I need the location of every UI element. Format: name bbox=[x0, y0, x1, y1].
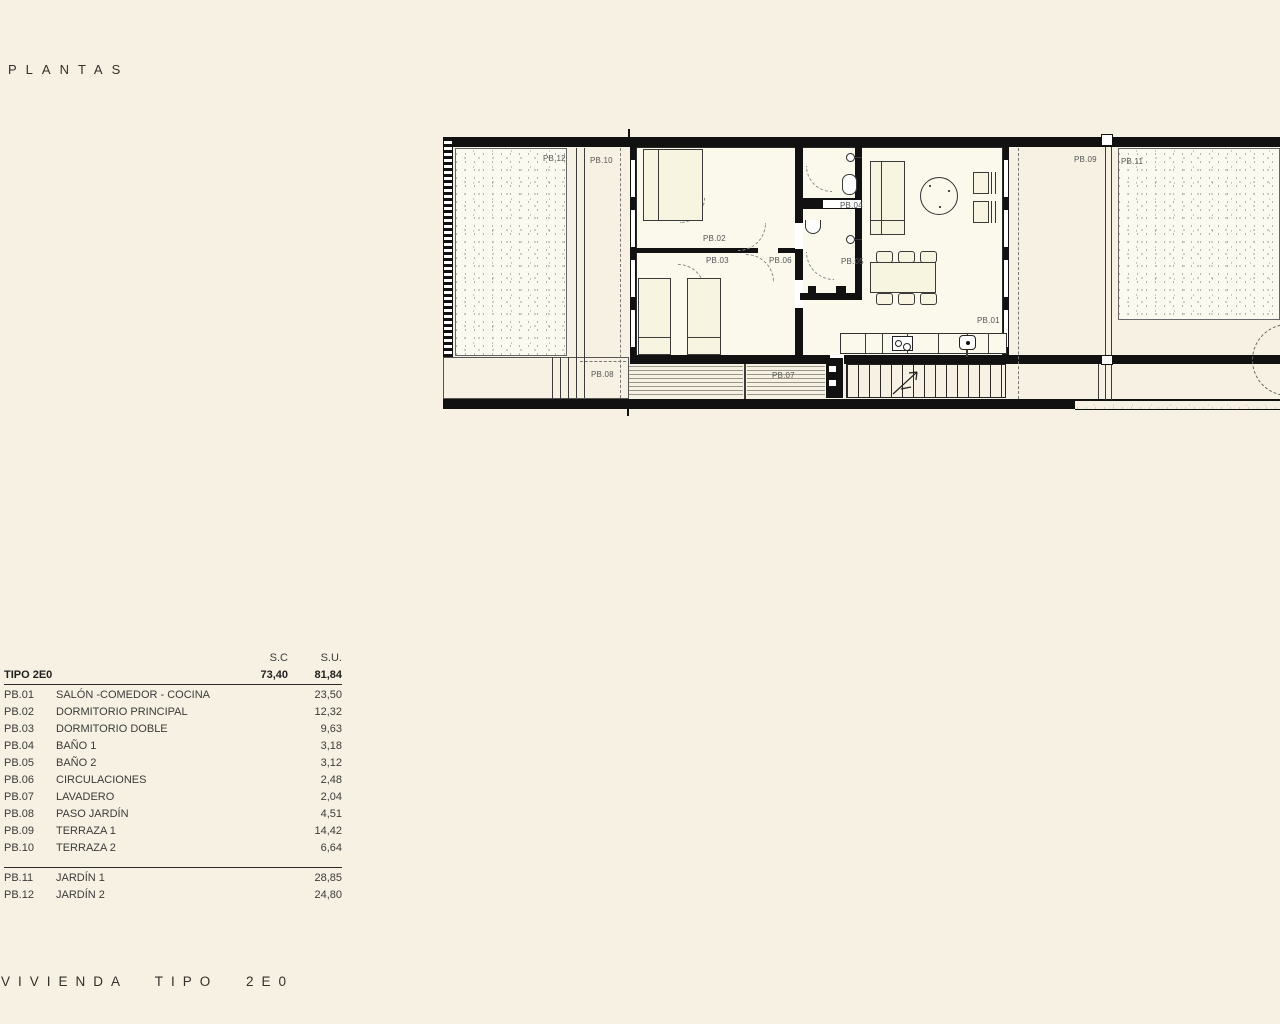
laundry-wall bbox=[826, 358, 843, 398]
room-area-value: 12,32 bbox=[288, 706, 342, 718]
table-dot bbox=[929, 185, 931, 187]
burner bbox=[895, 340, 902, 347]
room-area-value: 2,04 bbox=[288, 791, 342, 803]
table-row: PB.04 BAÑO 1 3,18 bbox=[4, 737, 342, 754]
armchair-armrest bbox=[991, 172, 996, 194]
bathroom-wall-right bbox=[855, 147, 862, 300]
table-summary-row: TIPO 2E0 73,40 81,84 bbox=[4, 666, 342, 683]
shower-arm bbox=[854, 157, 862, 158]
wall-pier bbox=[808, 286, 816, 293]
room-code: PB.01 bbox=[4, 689, 56, 701]
sink-icon bbox=[959, 335, 976, 350]
table-gap bbox=[4, 856, 342, 866]
sheet-title: VIVIENDA TIPO 2E0 bbox=[1, 974, 294, 989]
room-area-value: 28,85 bbox=[288, 872, 342, 884]
table-row: PB.11 JARDÍN 1 28,85 bbox=[4, 869, 342, 886]
toilet bbox=[842, 174, 857, 195]
sofa-seat-line bbox=[871, 220, 904, 221]
table-rule bbox=[4, 867, 342, 868]
room-name: LAVADERO bbox=[56, 791, 230, 803]
room-name: SALÓN -COMEDOR - COCINA bbox=[56, 689, 230, 701]
room-code: PB.05 bbox=[4, 757, 56, 769]
gravel-texture bbox=[1077, 403, 1278, 409]
room-code: PB.03 bbox=[4, 723, 56, 735]
stairs-direction-arrow bbox=[885, 365, 955, 397]
bathroom-wall-bottom bbox=[800, 293, 862, 300]
room-name: TERRAZA 1 bbox=[56, 825, 230, 837]
boundary-band-right bbox=[1075, 399, 1280, 410]
stove-icon bbox=[892, 336, 913, 351]
room-area-value: 23,50 bbox=[288, 689, 342, 701]
page-title: PLANTAS bbox=[8, 62, 129, 77]
sofa bbox=[870, 161, 905, 235]
room-name: DORMITORIO PRINCIPAL bbox=[56, 706, 230, 718]
table-header-row: S.C S.U. bbox=[4, 649, 342, 666]
round-table bbox=[920, 177, 958, 215]
room-code: PB.08 bbox=[4, 808, 56, 820]
roof-overhang-dashed bbox=[1018, 148, 1019, 399]
total-su: 81,84 bbox=[288, 669, 342, 681]
garden-2-area bbox=[455, 148, 567, 356]
armchair-armrest bbox=[991, 201, 996, 223]
floor-plan: PB.12PB.10PB.02PB.03PB.06PB.04PB.05PB.01… bbox=[440, 128, 1280, 418]
table-body-exterior: PB.11 JARDÍN 1 28,85 PB.12 JARDÍN 2 24,8… bbox=[4, 869, 342, 903]
glazed-facade-right bbox=[1003, 147, 1009, 356]
room-name: JARDÍN 1 bbox=[56, 872, 230, 884]
table-row: PB.09 TERRAZA 1 14,42 bbox=[4, 822, 342, 839]
room-code: PB.02 bbox=[4, 706, 56, 718]
table-row: PB.01 SALÓN -COMEDOR - COCINA 23,50 bbox=[4, 686, 342, 703]
total-sc: 73,40 bbox=[230, 669, 288, 681]
room-area-value: 2,48 bbox=[288, 774, 342, 786]
roof-overhang-dashed bbox=[620, 148, 621, 398]
dining-chair bbox=[876, 293, 893, 305]
table-row: PB.06 CIRCULACIONES 2,48 bbox=[4, 771, 342, 788]
column-marker bbox=[1101, 134, 1113, 146]
room-code: PB.12 bbox=[4, 889, 56, 901]
label-box bbox=[823, 200, 861, 208]
table-row: PB.07 LAVADERO 2,04 bbox=[4, 788, 342, 805]
kitchen-counter bbox=[840, 333, 1007, 354]
sofa-back-line bbox=[881, 162, 882, 234]
room-area-value: 14,42 bbox=[288, 825, 342, 837]
room-name: PASO JARDÍN bbox=[56, 808, 230, 820]
room-name: DORMITORIO DOBLE bbox=[56, 723, 230, 735]
wall-pier bbox=[836, 286, 846, 293]
area-table: S.C S.U. TIPO 2E0 73,40 81,84 PB.01 SALÓ… bbox=[4, 649, 342, 903]
table-row: PB.05 BAÑO 2 3,12 bbox=[4, 754, 342, 771]
column-header-su: S.U. bbox=[288, 652, 342, 664]
deck-divider bbox=[744, 364, 746, 399]
corridor-wall bbox=[795, 147, 803, 356]
garden-1-area bbox=[1118, 148, 1280, 320]
column-header-sc: S.C bbox=[230, 652, 288, 664]
counter-divider bbox=[938, 334, 939, 353]
pillow-line bbox=[658, 150, 659, 220]
post-line bbox=[568, 357, 569, 399]
bed-single bbox=[687, 278, 721, 355]
shower-arm bbox=[854, 239, 862, 240]
tree-canopy bbox=[1252, 324, 1280, 396]
room-code: PB.07 bbox=[4, 791, 56, 803]
room-code: PB.04 bbox=[4, 740, 56, 752]
room-name: TERRAZA 2 bbox=[56, 842, 230, 854]
table-dot bbox=[939, 206, 941, 208]
laundry-niche bbox=[829, 380, 836, 386]
faucet-stem bbox=[966, 350, 968, 357]
post-line bbox=[552, 357, 553, 399]
dimension-tick-bottom bbox=[627, 409, 629, 416]
counter-divider bbox=[988, 334, 989, 353]
garden-passage-area bbox=[443, 357, 629, 399]
facade-wall-bottom bbox=[630, 355, 1280, 364]
room-area-value: 24,80 bbox=[288, 889, 342, 901]
armchair bbox=[973, 201, 989, 223]
post-line bbox=[560, 357, 561, 399]
table-row: PB.02 DORMITORIO PRINCIPAL 12,32 bbox=[4, 703, 342, 720]
dimension-tick-top bbox=[628, 129, 630, 137]
room-code: PB.11 bbox=[4, 872, 56, 884]
room-area-value: 4,51 bbox=[288, 808, 342, 820]
room-area-value: 3,18 bbox=[288, 740, 342, 752]
room-code: PB.09 bbox=[4, 825, 56, 837]
boundary-line bbox=[1098, 364, 1099, 399]
terrace-edge-line bbox=[576, 148, 577, 398]
room-area-value: 6,64 bbox=[288, 842, 342, 854]
room-name: BAÑO 2 bbox=[56, 757, 230, 769]
drain bbox=[966, 341, 970, 345]
room-name: CIRCULACIONES bbox=[56, 774, 230, 786]
table-body-interior: PB.01 SALÓN -COMEDOR - COCINA 23,50 PB.0… bbox=[4, 686, 342, 856]
garden-passage-deck bbox=[629, 366, 743, 397]
blanket-line bbox=[688, 337, 720, 338]
room-code: PB.06 bbox=[4, 774, 56, 786]
bed-double bbox=[643, 149, 703, 221]
dining-chair bbox=[898, 293, 915, 305]
armchair bbox=[973, 172, 989, 194]
burner bbox=[903, 343, 911, 351]
laundry-niche bbox=[829, 366, 836, 372]
door-opening bbox=[795, 223, 803, 249]
room-name: JARDÍN 2 bbox=[56, 889, 230, 901]
blanket-line bbox=[639, 337, 670, 338]
table-rule bbox=[4, 684, 342, 685]
table-row: PB.03 DORMITORIO DOBLE 9,63 bbox=[4, 720, 342, 737]
room-label: PB.09 bbox=[1074, 155, 1097, 164]
type-name: TIPO 2E0 bbox=[4, 669, 230, 681]
terrace-edge-line bbox=[584, 148, 585, 398]
dining-chair bbox=[920, 293, 937, 305]
wall-bottom bbox=[443, 399, 1075, 409]
drawing-sheet: { "colors": {"background":"#f6f1e2","ink… bbox=[0, 0, 1280, 1024]
bed-single bbox=[638, 278, 671, 355]
room-area-value: 3,12 bbox=[288, 757, 342, 769]
counter-divider bbox=[865, 334, 866, 353]
wall-hatch-left bbox=[443, 137, 453, 357]
counter-divider bbox=[882, 334, 883, 353]
laundry-deck bbox=[747, 366, 825, 397]
room-area-value: 9,63 bbox=[288, 723, 342, 735]
wall-top bbox=[443, 137, 1280, 147]
room-code: PB.10 bbox=[4, 842, 56, 854]
dining-table bbox=[870, 262, 936, 293]
column-marker bbox=[1101, 355, 1113, 365]
room-name: BAÑO 1 bbox=[56, 740, 230, 752]
table-row: PB.08 PASO JARDÍN 4,51 bbox=[4, 805, 342, 822]
room-label: PB.10 bbox=[590, 156, 613, 165]
table-dot bbox=[948, 190, 950, 192]
table-row: PB.12 JARDÍN 2 24,80 bbox=[4, 886, 342, 903]
table-row: PB.10 TERRAZA 2 6,64 bbox=[4, 839, 342, 856]
